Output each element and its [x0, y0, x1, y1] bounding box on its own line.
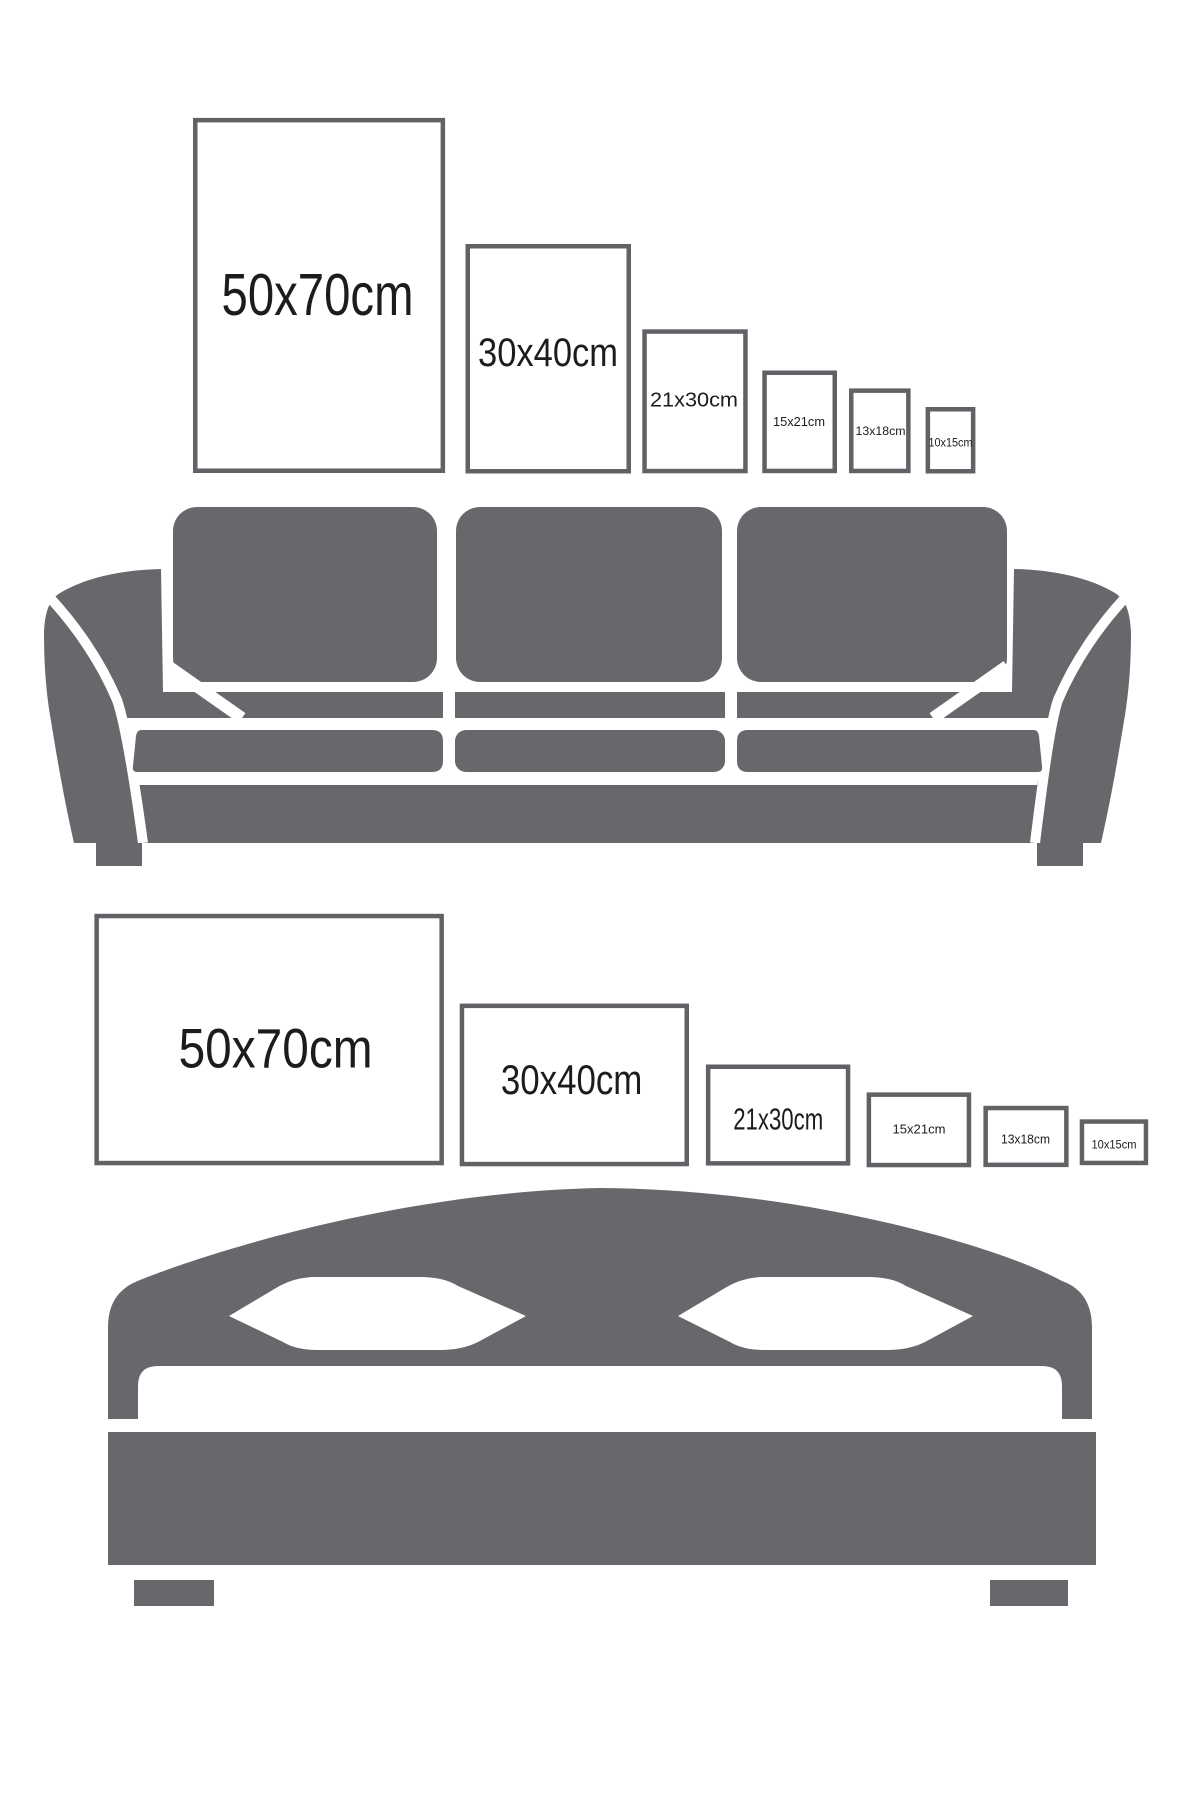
svg-text:30x40cm: 30x40cm: [501, 1056, 643, 1103]
svg-text:50x70cm: 50x70cm: [179, 1018, 373, 1080]
svg-text:50x70cm: 50x70cm: [222, 262, 414, 328]
svg-text:30x40cm: 30x40cm: [478, 331, 618, 375]
svg-text:13x18cm: 13x18cm: [1001, 1131, 1050, 1146]
svg-text:10x15cm: 10x15cm: [929, 438, 973, 450]
svg-text:13x18cm: 13x18cm: [856, 424, 906, 438]
svg-text:15x21cm: 15x21cm: [773, 415, 825, 429]
svg-text:21x30cm: 21x30cm: [650, 390, 738, 412]
svg-text:10x15cm: 10x15cm: [1092, 1138, 1137, 1152]
svg-text:21x30cm: 21x30cm: [733, 1102, 823, 1137]
svg-text:15x21cm: 15x21cm: [893, 1122, 946, 1137]
